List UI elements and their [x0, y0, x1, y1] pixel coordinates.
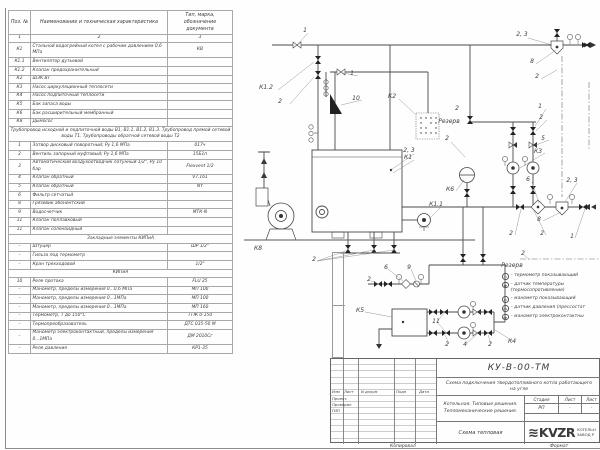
sig-row-proveril: Проверил	[332, 403, 351, 407]
footer-format: Формат	[550, 444, 568, 449]
table-row: К6Бак расширительный мембранный	[9, 110, 233, 119]
legend-item: PE– манометр электроконтактны	[502, 314, 600, 321]
table-row: К4Насос подпиточный теплосети	[9, 92, 233, 101]
sig-col-izm: Изм	[332, 390, 340, 394]
butterfly-valve	[337, 69, 345, 75]
schematic-label: 2	[535, 74, 539, 80]
schematic-label: К6	[446, 187, 454, 193]
table-row: 1Затвор дисковый поворотный; Ру 1,6 МПа0…	[9, 142, 233, 151]
schematic-label: 2	[278, 99, 282, 105]
fan-k8	[256, 152, 296, 240]
table-row: 11Клапан поплавковый	[9, 217, 233, 226]
schematic-label: 5	[541, 136, 545, 142]
schematic-label: 2	[488, 342, 492, 348]
table-row: 9ВодосчетчикМТК-N	[9, 209, 233, 218]
legend-item: TI– термометр показывающий	[502, 273, 600, 280]
table-row: –Манометр электроконтактный, пределы изм…	[9, 329, 233, 344]
legend-symbol-circle: PE	[502, 314, 509, 321]
table-row: 11Клапан соленоидный	[9, 226, 233, 235]
stage-label: Стадия	[524, 395, 558, 403]
col-header-pos: Поз. №	[9, 11, 31, 35]
schematic-label: К1	[404, 155, 412, 161]
table-row: 6Фильтр сетчатый	[9, 192, 233, 201]
pump-k4-2	[458, 327, 470, 339]
schematic-label: К2	[388, 94, 396, 100]
strainer-meter-b1	[402, 280, 420, 289]
col-header-name: Наименование и техническая характеристик…	[31, 11, 168, 35]
schematic-label: 4	[463, 342, 467, 348]
pump-k4-1	[458, 306, 470, 318]
sheet-value: -	[558, 403, 581, 413]
legend-item: PS– датчик давления (прессостат	[502, 305, 600, 312]
parts-table: Поз. № Наименование и техническая характ…	[8, 10, 233, 354]
schematic-label: К3	[534, 149, 542, 155]
sig-col-podp: Подп	[396, 390, 406, 394]
butterfly-valve	[293, 42, 301, 48]
stage-empty-row	[524, 413, 600, 421]
parts-table-header: Поз. № Наименование и техническая характ…	[9, 11, 233, 35]
table-section-row: Трубопровод исходной и подпиточной воды …	[9, 127, 233, 142]
schematic-label: Резерв	[501, 263, 523, 269]
legend-symbol-circle: PI	[502, 296, 509, 303]
legend-item: TE– датчик температуры (термосопротивлен…	[502, 282, 600, 295]
drawing-sheet: Поз. № Наименование и техническая характ…	[0, 0, 600, 450]
schematic-label: 6	[384, 265, 388, 271]
schematic-label: 9	[407, 265, 411, 271]
table-row: К1Стальной водогрейный котел с рабочим д…	[9, 43, 233, 58]
sheet-label: Лист	[558, 395, 581, 403]
table-row: –Термометр, Т до 150°СТТЖ 0-150	[9, 312, 233, 321]
table-row: 5Клапан обратныйNY	[9, 183, 233, 192]
check-valve	[473, 309, 481, 315]
legend-symbol-circle: TE	[502, 282, 509, 289]
table-section-row: КИПиА	[9, 269, 233, 278]
table-row: 8Грязевик абонентский	[9, 200, 233, 209]
schematic-label: Резерв	[438, 119, 460, 125]
schematic-label: 1	[570, 234, 574, 240]
table-row: –Кран трехходовой1/2"	[9, 261, 233, 270]
drawing-subject: Схема подключения твердотопливного котла…	[436, 377, 600, 395]
table-row: –Реле давленияКР1-35	[9, 345, 233, 354]
schematic-label: 2	[509, 231, 513, 237]
flow-relay-symbol	[330, 94, 342, 114]
footer-copied-by: Копировал	[390, 444, 416, 449]
dirt-separator-return	[556, 202, 568, 215]
sheets-value: -	[581, 403, 600, 413]
logo-subtitle: КОТЕЛЬНЗАВОД Р	[577, 428, 596, 438]
sig-col-list: Лист	[344, 390, 354, 394]
title-block: Изм Лист N докум Подп Дата Проект. Прове…	[330, 358, 600, 443]
table-row: К1.1Вентилятор дутьевой	[9, 58, 233, 67]
schematic-label: 2, 3	[566, 178, 577, 184]
schematic-label: К4	[508, 339, 516, 345]
tank-k5	[392, 309, 427, 336]
document-number: КУ-В-00-ТМ	[436, 359, 600, 377]
company-logo: ≋ KVZR КОТЕЛЬНЗАВОД Р	[524, 421, 600, 444]
schematic-label: К8	[254, 246, 262, 252]
table-row: К2ШЗК ВТ	[9, 75, 233, 84]
schematic-label: 6	[526, 177, 530, 183]
schematic-label: 2	[445, 136, 449, 142]
table-row: К3Насос циркуляционный теплосети	[9, 84, 233, 93]
sheet-title: Схема тепловая	[436, 421, 524, 444]
table-row: –Гильза под термометр	[9, 252, 233, 261]
check-valve	[473, 330, 481, 336]
schematic-label: 2	[521, 251, 525, 257]
instrument-legend: TI– термометр показывающийTE– датчик тем…	[502, 273, 600, 323]
schematic-label: 1	[350, 71, 354, 77]
schematic-label: 2	[539, 115, 543, 121]
boiler-k1	[312, 150, 402, 238]
schematic-label: 2	[445, 342, 449, 348]
schematic-label: 2	[540, 231, 544, 237]
air-vent-symbols	[309, 80, 328, 142]
pump-k3-2	[527, 162, 539, 174]
boundary-lines	[520, 56, 600, 259]
sig-row-proekt: Проект.	[332, 397, 348, 401]
legend-symbol-circle: PS	[502, 305, 509, 312]
table-row: –Манометр, пределы измерения 0...1МПаМП …	[9, 304, 233, 313]
schematic-label: 2	[455, 106, 459, 112]
table-section-row: Закладные элементы КИПиА	[9, 235, 233, 244]
logo-text: KVZR	[539, 427, 575, 440]
schematic-label: 11	[432, 319, 440, 325]
side-stamp-cells	[332, 252, 344, 358]
schematic-label: 1	[538, 104, 542, 110]
stage-value: РП	[524, 403, 558, 413]
table-row: –ШтуцерШР 1/2"	[9, 243, 233, 252]
schematic-label: 2	[312, 257, 316, 263]
table-row: К1.2Клапан предохранительный	[9, 67, 233, 76]
legend-item: PI– манометр показывающий	[502, 296, 600, 303]
schematic-label: 10	[352, 96, 360, 102]
pump-k3-1	[507, 162, 519, 174]
schematic-label: К5	[356, 308, 364, 314]
schematic-label: 1	[303, 28, 307, 34]
sig-col-ndoc: N докум	[361, 390, 377, 394]
schematic-label: К1.1	[429, 202, 443, 208]
table-row: 2Вентиль запорный муфтовый; Ру 1,6 МПа15…	[9, 151, 233, 160]
table-row: 10Реле протокаFLU 25	[9, 278, 233, 287]
schematic-label: 8	[537, 217, 541, 223]
table-row: К5Бак запаса воды	[9, 101, 233, 110]
table-row: 4Клапан обратныйV7.161	[9, 174, 233, 183]
col-header-type: Тип, марка, обозначение документа	[168, 11, 233, 35]
fan-k1-1	[418, 214, 431, 232]
table-row: –ТермопреобразовательДТС 035-50 М	[9, 321, 233, 330]
table-row: –Манометр, пределы измерения 0...0,6 МПа…	[9, 286, 233, 295]
schematic-label: 2	[367, 277, 371, 283]
signature-grid: Изм Лист N докум Подп Дата Проект. Прове…	[331, 359, 436, 444]
object-name: Котельная. Типовые решения.Тепломеханиче…	[436, 395, 524, 421]
column-number-row: 1 2 3	[9, 34, 233, 43]
sheets-label: Лист	[581, 395, 600, 403]
logo-wave-icon: ≋	[528, 427, 539, 440]
legend-symbol-circle: TI	[502, 273, 509, 280]
schematic-label: 8	[530, 59, 534, 65]
table-row: 3Автоматический воздухоотводчик латунный…	[9, 159, 233, 174]
cabinet-k2	[416, 113, 439, 139]
tank-k6	[460, 168, 475, 183]
sig-col-data: Дата	[419, 390, 429, 394]
table-row: –Манометр, пределы измерения 0...1МПаМП …	[9, 295, 233, 304]
sig-row-gip: ГИП	[332, 409, 340, 413]
schematic-label: 2, 3	[516, 32, 527, 38]
schematic-label: К1.2	[259, 85, 273, 91]
table-row: К8Дымосос	[9, 118, 233, 127]
